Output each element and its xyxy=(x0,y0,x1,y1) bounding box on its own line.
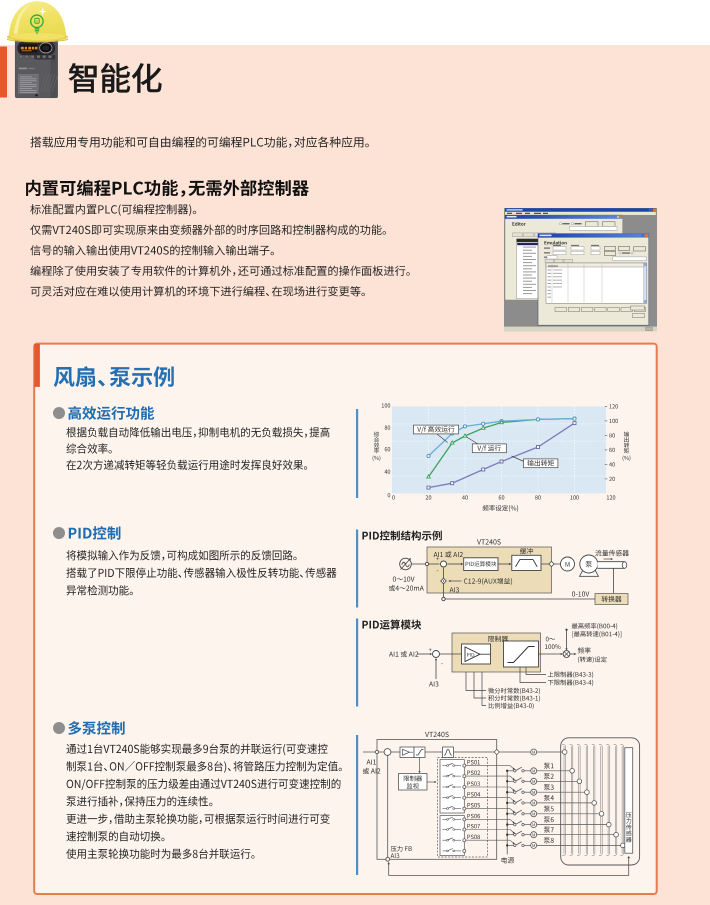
svg-text:n: n xyxy=(36,19,38,24)
